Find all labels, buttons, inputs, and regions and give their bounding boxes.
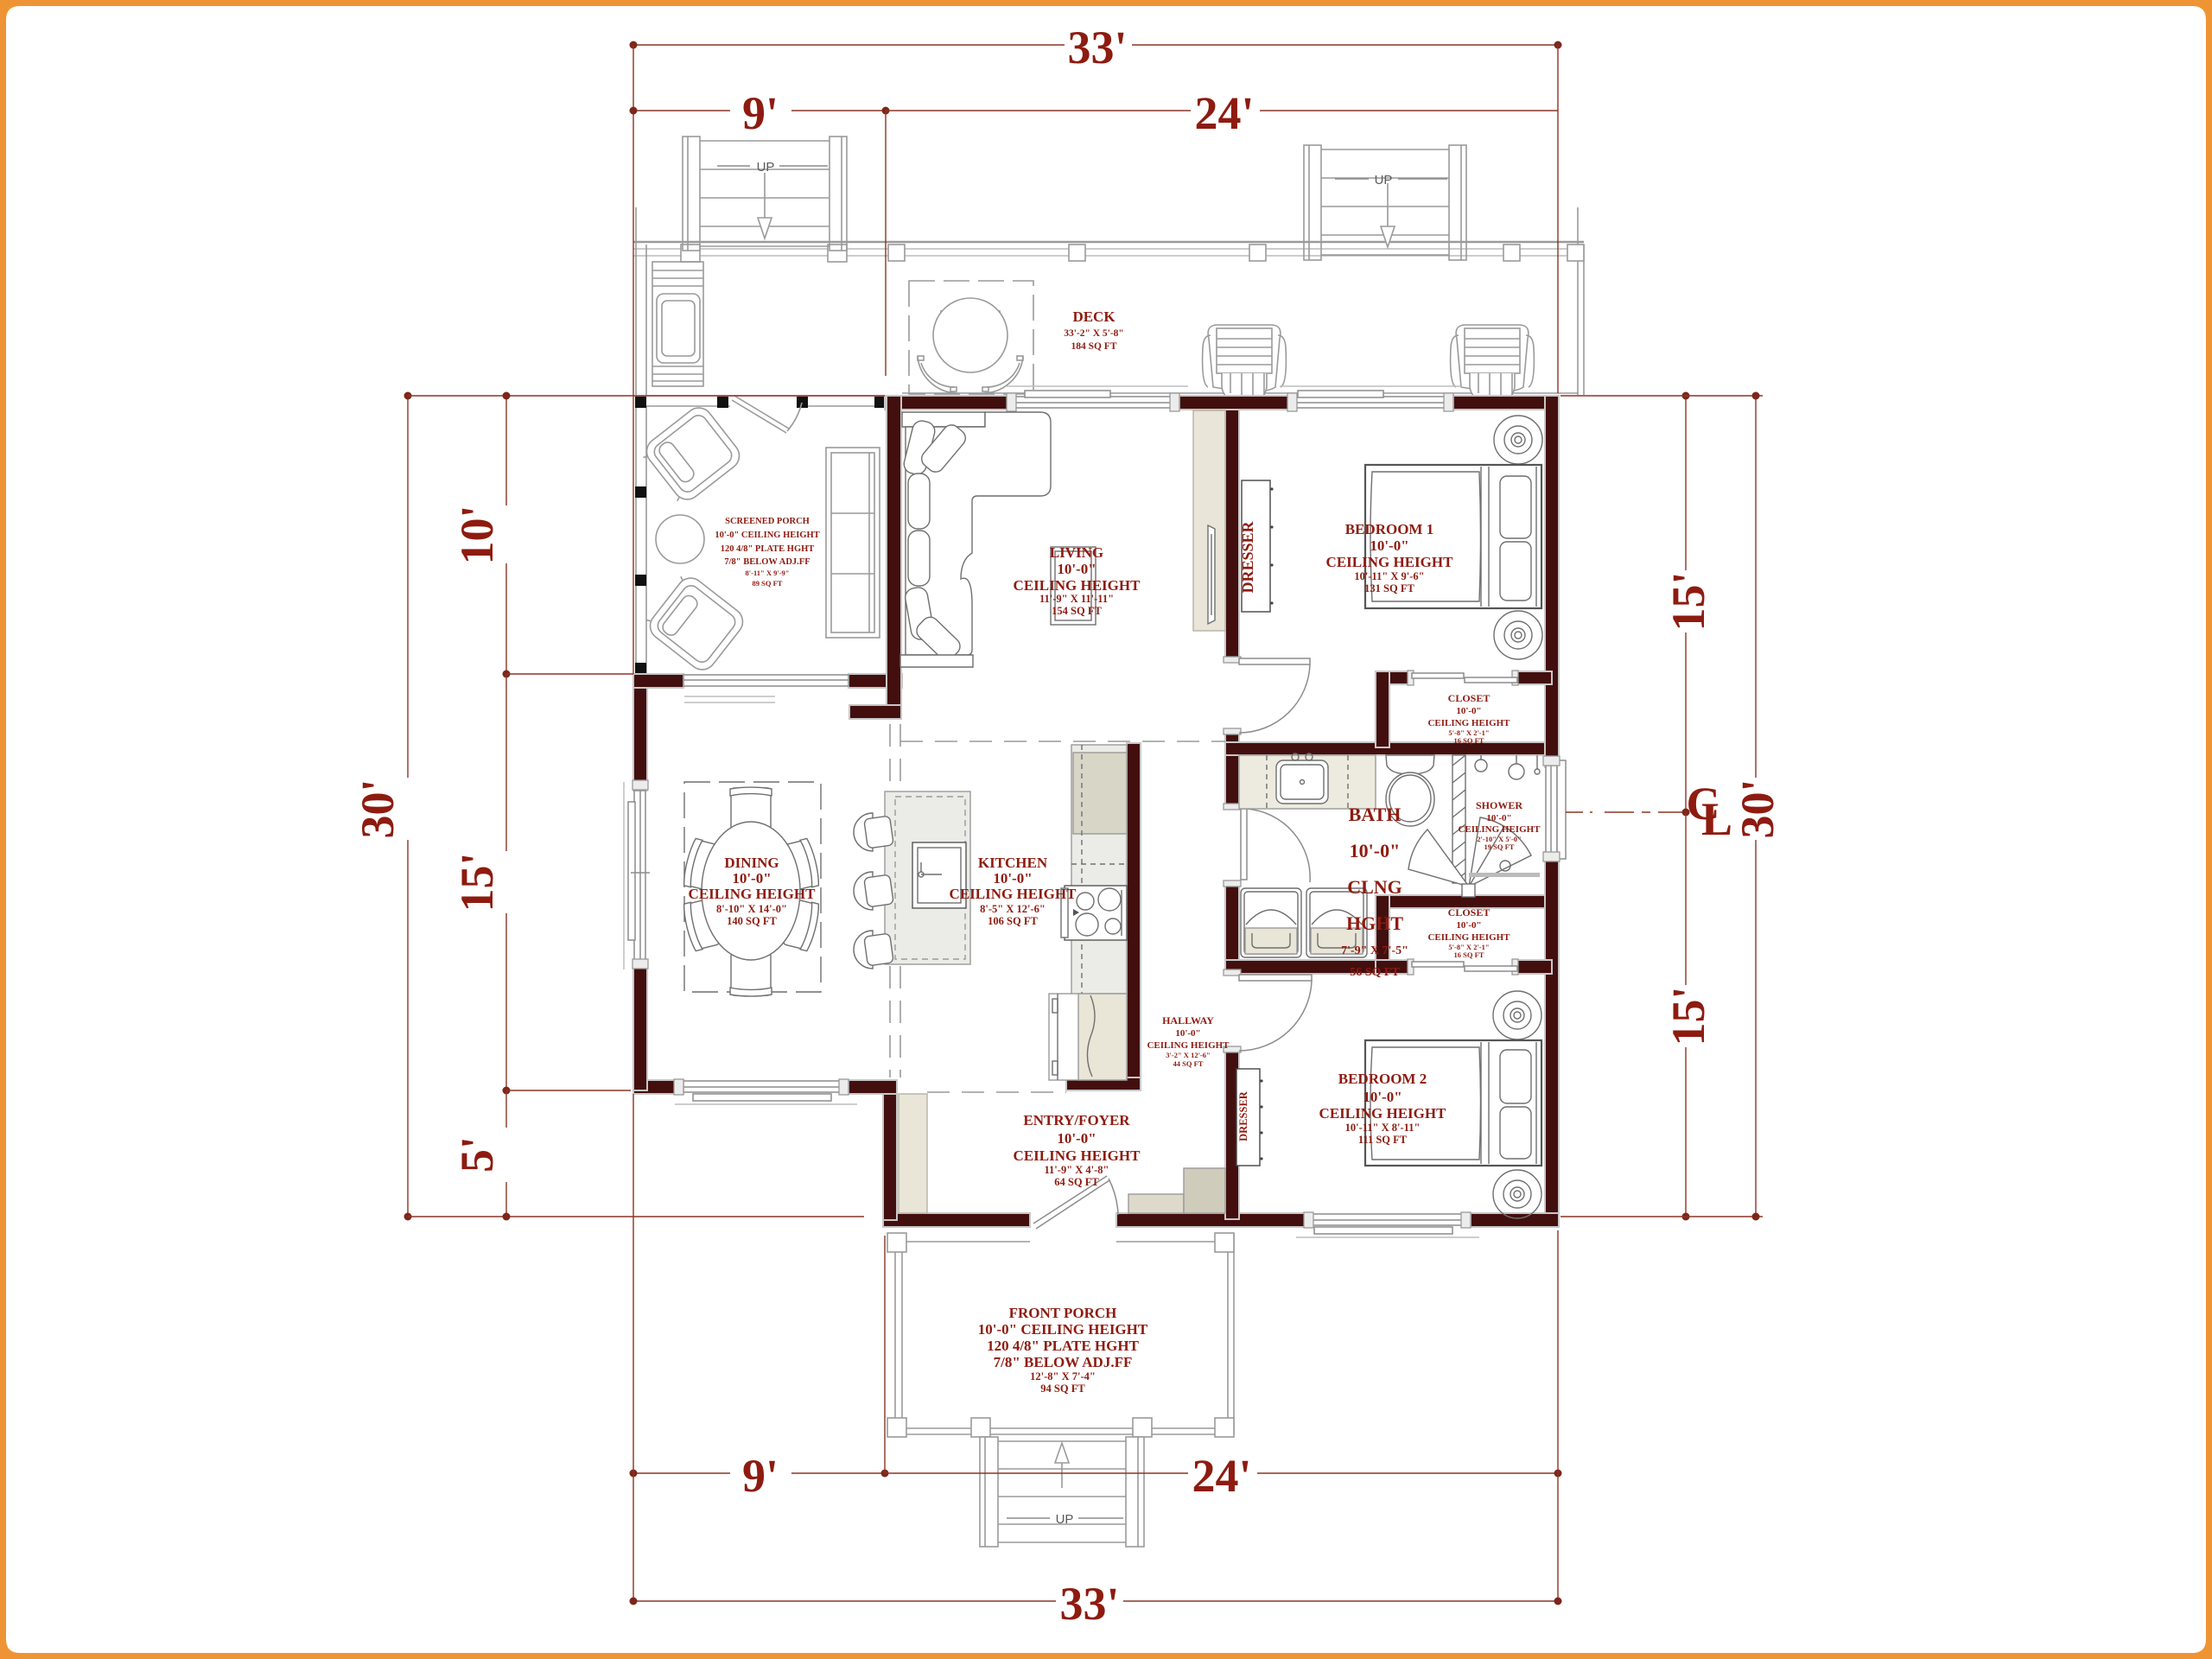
svg-text:UP: UP: [1056, 1512, 1074, 1527]
svg-text:154 SQ FT: 154 SQ FT: [1052, 605, 1102, 617]
svg-text:DRESSER: DRESSER: [1237, 1090, 1249, 1141]
svg-text:3'-2" X 12'-6": 3'-2" X 12'-6": [1166, 1051, 1210, 1059]
svg-text:KITCHEN: KITCHEN: [978, 855, 1048, 871]
svg-text:L: L: [1701, 793, 1732, 845]
svg-text:CEILING HEIGHT: CEILING HEIGHT: [689, 886, 817, 902]
svg-text:11'-9" X 11'-11": 11'-9" X 11'-11": [1039, 593, 1114, 605]
svg-text:BEDROOM 2: BEDROOM 2: [1338, 1071, 1427, 1087]
svg-text:33': 33': [1059, 1578, 1119, 1630]
svg-text:64 SQ FT: 64 SQ FT: [1054, 1176, 1099, 1188]
svg-text:10'-0": 10'-0": [1363, 1089, 1402, 1105]
svg-text:89 SQ FT: 89 SQ FT: [753, 579, 783, 588]
svg-text:10'-0": 10'-0": [1456, 706, 1481, 716]
svg-text:30': 30': [1732, 779, 1783, 838]
svg-text:DINING: DINING: [724, 855, 779, 871]
svg-text:11'-9" X 4'-8": 11'-9" X 4'-8": [1045, 1164, 1109, 1176]
svg-text:120 4/8" PLATE HGHT: 120 4/8" PLATE HGHT: [721, 544, 815, 554]
svg-text:10'-0": 10'-0": [1057, 561, 1096, 577]
svg-text:10'-0": 10'-0": [1486, 813, 1511, 823]
svg-text:10'-0": 10'-0": [1370, 537, 1408, 554]
svg-text:8'-11" X 9'-9": 8'-11" X 9'-9": [746, 569, 790, 577]
svg-text:CEILING HEIGHT: CEILING HEIGHT: [1014, 577, 1141, 594]
svg-text:LIVING: LIVING: [1050, 544, 1103, 561]
svg-text:10'-0": 10'-0": [993, 870, 1032, 887]
svg-text:ENTRY/FOYER: ENTRY/FOYER: [1023, 1112, 1130, 1128]
svg-text:UP: UP: [757, 160, 775, 175]
svg-text:FRONT PORCH: FRONT PORCH: [1009, 1305, 1117, 1321]
svg-text:10'-0": 10'-0": [1456, 920, 1481, 931]
svg-text:CEILING HEIGHT: CEILING HEIGHT: [1326, 554, 1454, 570]
svg-text:10': 10': [451, 505, 503, 564]
svg-text:10'-0" CEILING HEIGHT: 10'-0" CEILING HEIGHT: [978, 1321, 1148, 1338]
svg-text:106 SQ FT: 106 SQ FT: [988, 915, 1038, 927]
svg-text:HGHT: HGHT: [1346, 912, 1403, 934]
svg-text:56 SQ FT: 56 SQ FT: [1350, 966, 1400, 979]
svg-text:SHOWER: SHOWER: [1476, 799, 1522, 811]
svg-text:10'-0": 10'-0": [1175, 1028, 1200, 1039]
svg-text:8'-5" X 12'-6": 8'-5" X 12'-6": [980, 903, 1046, 915]
svg-text:184 SQ FT: 184 SQ FT: [1071, 341, 1116, 352]
svg-text:CLOSET: CLOSET: [1448, 692, 1491, 704]
svg-text:DRESSER: DRESSER: [1239, 520, 1256, 593]
svg-text:UP: UP: [1375, 173, 1393, 188]
svg-text:SCREENED PORCH: SCREENED PORCH: [725, 517, 810, 526]
svg-text:9': 9': [742, 1450, 779, 1502]
svg-text:5': 5': [451, 1136, 503, 1173]
svg-text:44 SQ FT: 44 SQ FT: [1173, 1059, 1204, 1068]
svg-text:12'-8" X 7'-4": 12'-8" X 7'-4": [1030, 1370, 1096, 1382]
svg-text:30': 30': [352, 779, 404, 838]
svg-text:120 4/8" PLATE HGHT: 120 4/8" PLATE HGHT: [987, 1338, 1139, 1354]
svg-text:HALLWAY: HALLWAY: [1162, 1014, 1214, 1027]
svg-text:10'-11" X 9'-6": 10'-11" X 9'-6": [1354, 570, 1424, 582]
svg-text:111 SQ FT: 111 SQ FT: [1358, 1134, 1408, 1146]
svg-text:10'-0": 10'-0": [732, 870, 771, 887]
svg-text:CEILING HEIGHT: CEILING HEIGHT: [950, 886, 1077, 902]
svg-text:7'-9" X 7'-5": 7'-9" X 7'-5": [1341, 944, 1408, 957]
svg-text:10'-0" CEILING HEIGHT: 10'-0" CEILING HEIGHT: [715, 531, 819, 540]
svg-text:33'-2" X 5'-8": 33'-2" X 5'-8": [1064, 328, 1124, 339]
svg-text:131 SQ FT: 131 SQ FT: [1364, 582, 1414, 594]
svg-text:BATH: BATH: [1349, 804, 1402, 825]
svg-text:CEILING HEIGHT: CEILING HEIGHT: [1427, 932, 1510, 943]
svg-text:10'-0": 10'-0": [1057, 1130, 1096, 1147]
svg-text:CLNG: CLNG: [1347, 876, 1402, 898]
svg-text:CEILING HEIGHT: CEILING HEIGHT: [1427, 718, 1510, 728]
svg-text:24': 24': [1194, 87, 1254, 139]
svg-text:24': 24': [1192, 1450, 1251, 1502]
svg-text:CEILING HEIGHT: CEILING HEIGHT: [1014, 1147, 1141, 1164]
svg-text:CEILING HEIGHT: CEILING HEIGHT: [1319, 1105, 1447, 1122]
svg-text:9': 9': [742, 87, 779, 139]
svg-text:140 SQ FT: 140 SQ FT: [727, 915, 777, 927]
svg-text:CEILING HEIGHT: CEILING HEIGHT: [1458, 824, 1541, 835]
svg-text:CEILING HEIGHT: CEILING HEIGHT: [1147, 1040, 1230, 1051]
svg-text:16 SQ FT: 16 SQ FT: [1454, 950, 1484, 959]
svg-text:10'-11" X 8'-11": 10'-11" X 8'-11": [1345, 1122, 1421, 1134]
svg-text:19 SQ FT: 19 SQ FT: [1484, 842, 1515, 851]
svg-text:15': 15': [1662, 571, 1714, 631]
svg-text:BEDROOM 1: BEDROOM 1: [1345, 521, 1433, 537]
svg-text:33': 33': [1067, 22, 1127, 73]
svg-text:15': 15': [451, 852, 503, 912]
svg-text:15': 15': [1662, 986, 1714, 1046]
svg-text:8'-10" X 14'-0": 8'-10" X 14'-0": [716, 903, 787, 915]
svg-text:7/8" BELOW ADJ.FF: 7/8" BELOW ADJ.FF: [994, 1354, 1133, 1370]
svg-text:10'-0": 10'-0": [1350, 840, 1401, 861]
svg-text:94 SQ FT: 94 SQ FT: [1040, 1382, 1085, 1395]
svg-text:16 SQ FT: 16 SQ FT: [1454, 736, 1484, 745]
svg-text:7/8" BELOW ADJ.FF: 7/8" BELOW ADJ.FF: [724, 557, 810, 567]
svg-text:DECK: DECK: [1072, 308, 1116, 325]
svg-text:CLOSET: CLOSET: [1448, 906, 1491, 918]
